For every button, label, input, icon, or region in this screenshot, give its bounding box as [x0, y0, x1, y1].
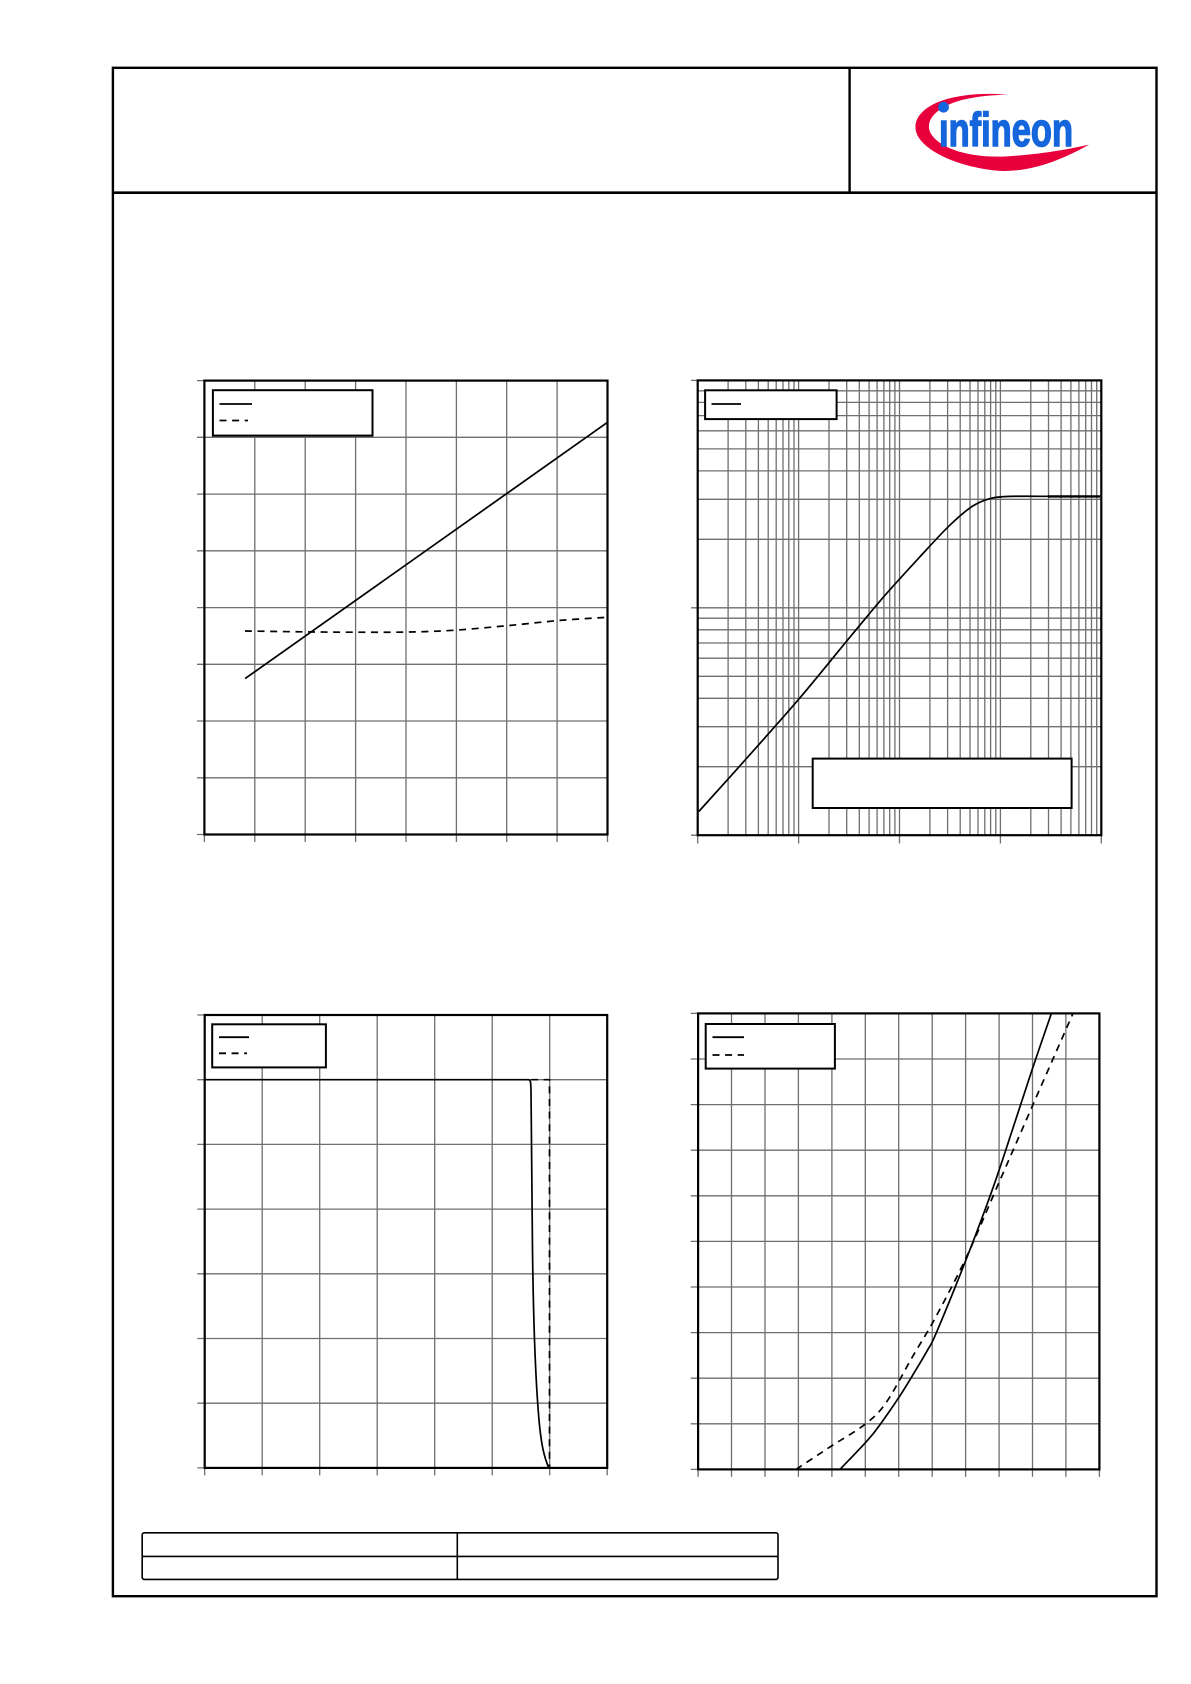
- svg-text:ınfineon: ınfineon: [939, 103, 1073, 156]
